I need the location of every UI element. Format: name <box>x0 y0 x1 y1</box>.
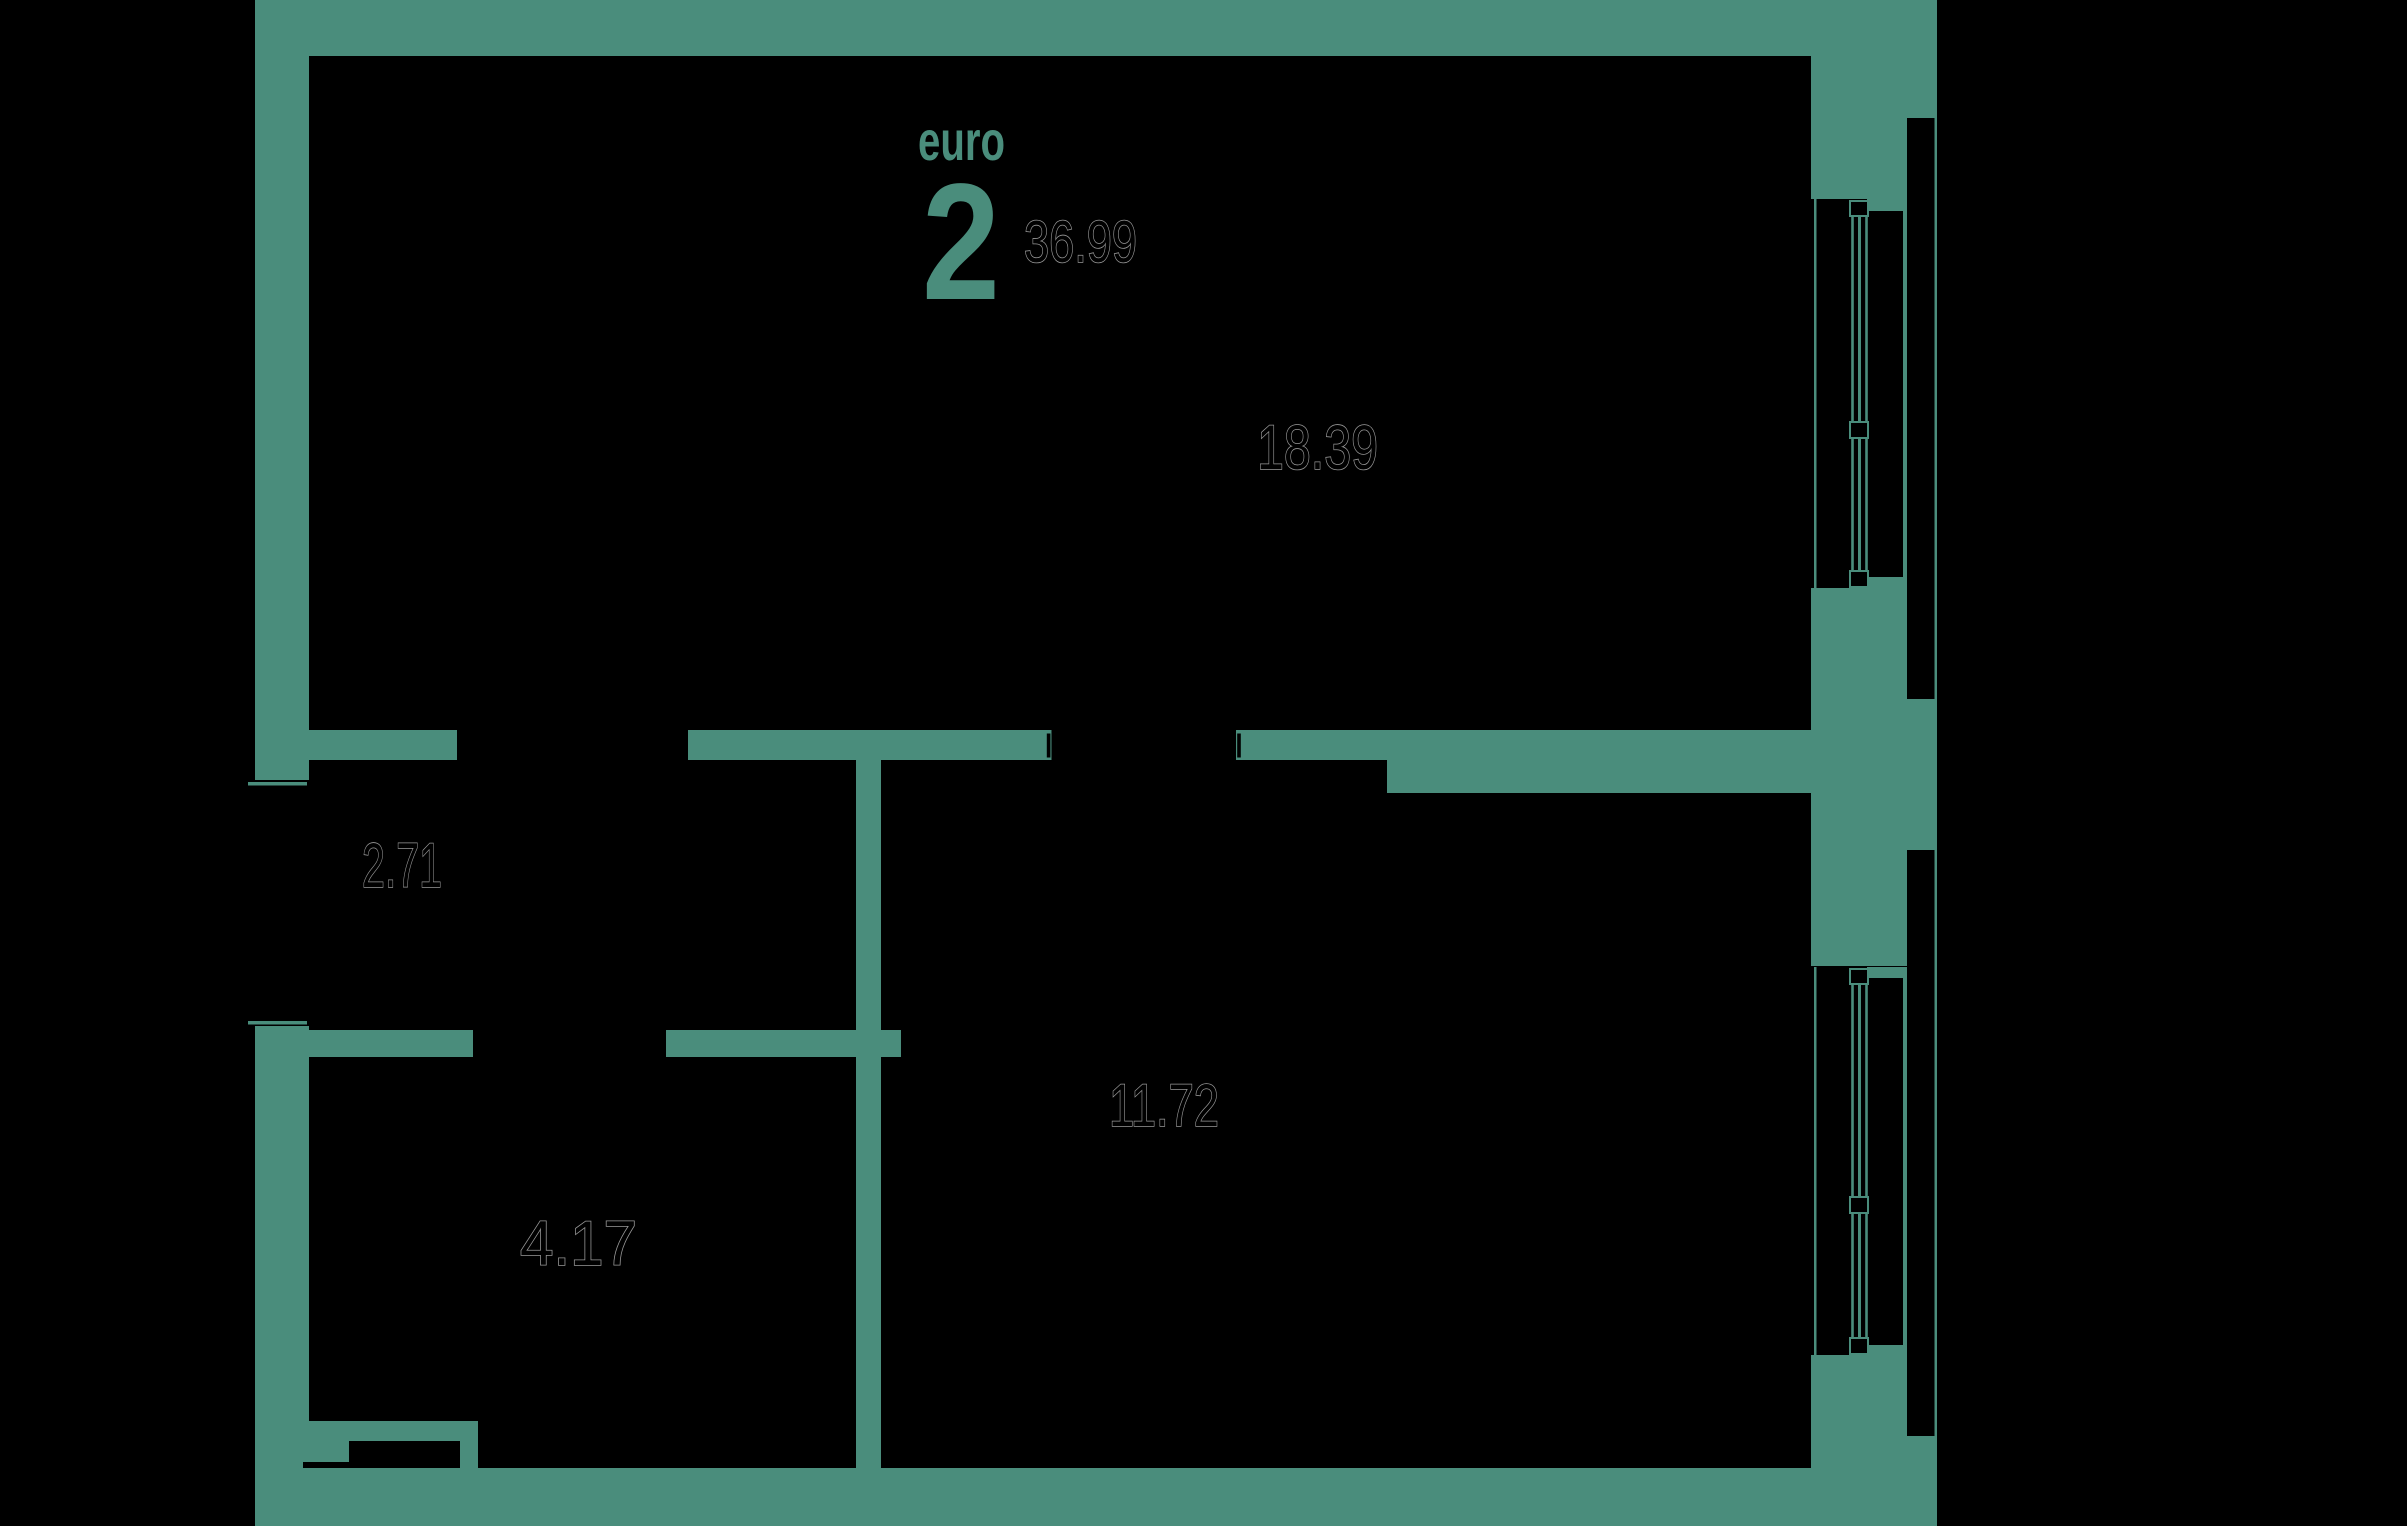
svg-text:4.17: 4.17 <box>520 1209 637 1279</box>
svg-text:2.71: 2.71 <box>362 831 442 901</box>
svg-text:11.72: 11.72 <box>1109 1072 1219 1139</box>
svg-text:18.39: 18.39 <box>1257 413 1378 483</box>
svg-text:2: 2 <box>922 150 1000 335</box>
svg-text:36.99: 36.99 <box>1024 209 1137 275</box>
